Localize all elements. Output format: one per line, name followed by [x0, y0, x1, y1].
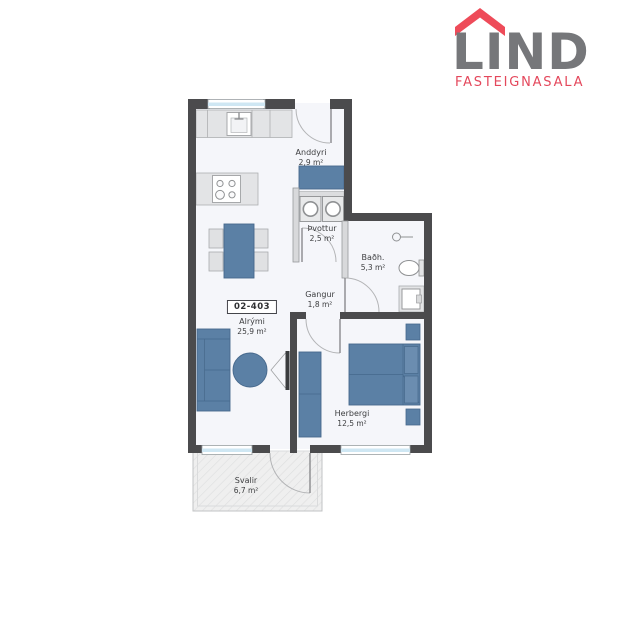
logo-name-text: LIND: [452, 27, 590, 77]
room-name: Anddyri: [296, 148, 327, 158]
room-label-thvottur: Þvottur 2,5 m²: [307, 224, 336, 244]
room-area: 5,3 m²: [361, 263, 386, 273]
laundry-cabinet: [299, 166, 344, 189]
room-label-badherbergi: Baðh. 5,3 m²: [361, 253, 386, 273]
wardrobe: [299, 352, 321, 437]
room-label-svalir: Svalir 6,7 m²: [234, 476, 259, 496]
room-area: 2,5 m²: [307, 234, 336, 244]
floorplan-page: Anddyri 2,9 m² Þvottur 2,5 m² Baðh. 5,3 …: [0, 0, 620, 620]
room-area: 25,9 m²: [237, 327, 266, 337]
double-bed: [349, 344, 420, 405]
room-name: Baðh.: [361, 253, 386, 263]
room-label-herbergi: Herbergi 12,5 m²: [335, 409, 370, 429]
room-area: 12,5 m²: [335, 419, 370, 429]
room-name: Þvottur: [307, 224, 336, 234]
lind-logo: LIND FASTEIGNASALA: [450, 3, 618, 98]
room-name: Gangur: [305, 290, 335, 300]
cooktop-icon: [213, 176, 241, 203]
room-name: Svalir: [234, 476, 259, 486]
sofa: [197, 329, 230, 411]
room-name: Alrými: [237, 317, 266, 327]
room-label-anddyri: Anddyri 2,9 m²: [296, 148, 327, 168]
logo-tagline-text: FASTEIGNASALA: [455, 75, 584, 90]
room-name: Herbergi: [335, 409, 370, 419]
room-area: 1,8 m²: [305, 300, 335, 310]
room-area: 2,9 m²: [296, 158, 327, 168]
unit-number-badge: 02-403: [227, 300, 277, 314]
room-label-alrymi: Alrými 25,9 m²: [237, 317, 266, 337]
round-table: [233, 353, 267, 387]
kitchen-sink-icon: [227, 113, 251, 136]
vanity-sink-icon: [399, 286, 424, 312]
dining-table: [224, 224, 254, 278]
room-label-gangur: Gangur 1,8 m²: [305, 290, 335, 310]
room-area: 6,7 m²: [234, 486, 259, 496]
toilet-icon: [399, 260, 424, 276]
